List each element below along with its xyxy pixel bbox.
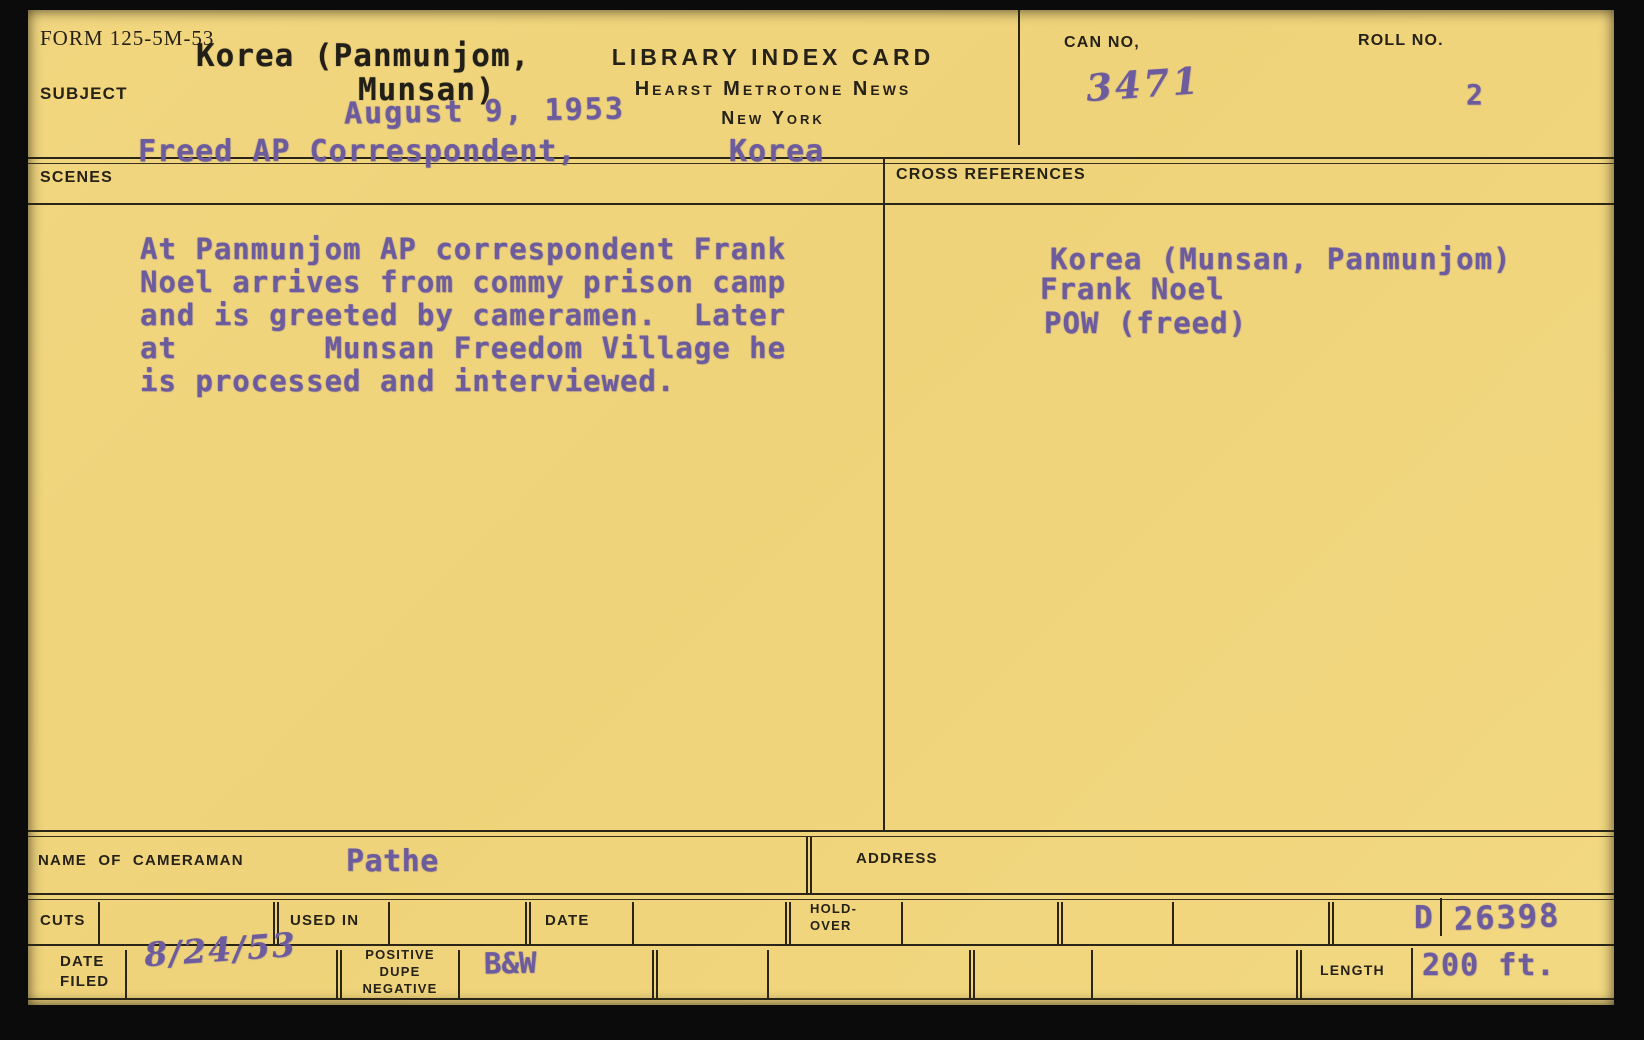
d-number-prefix: D [1414, 900, 1433, 936]
cuts-cell-divider [1172, 902, 1174, 944]
roll-no-value: 2 [1466, 78, 1483, 111]
cuts-cell-divider [785, 902, 791, 944]
holdover-label: HOLD- OVER [810, 900, 857, 934]
cross-reference-line: Korea (Munsan, Panmunjom) [1050, 242, 1512, 276]
cuts-cell-divider [525, 902, 531, 944]
used-in-label: USED IN [290, 912, 359, 929]
scan-background: FORM 125-5M-53 SUBJECT Korea (Panmunjom,… [0, 0, 1644, 1040]
scenes-line: Noel arrives from commy prison camp [140, 265, 786, 299]
cuts-cell-divider [388, 902, 390, 944]
cameraman-row-top-rule [28, 830, 1614, 837]
cuts-label: CUTS [40, 912, 86, 929]
filed-cell-divider [969, 950, 975, 998]
d-number-value: 26398 [1453, 896, 1561, 938]
filed-cell-divider [458, 950, 460, 998]
cuts-cell-divider [901, 902, 903, 944]
date-filed-value: 8/24/53 [143, 925, 298, 975]
cuts-row-top-rule [28, 893, 1614, 900]
library-index-card: FORM 125-5M-53 SUBJECT Korea (Panmunjom,… [28, 10, 1614, 1005]
filed-cell-divider [1091, 950, 1093, 998]
section-label-rule [28, 203, 1614, 205]
card-title: LIBRARY INDEX CARD [608, 44, 938, 71]
filed-cell-divider [336, 950, 342, 998]
form-number: FORM 125-5M-53 [40, 26, 214, 51]
address-label: ADDRESS [856, 850, 938, 867]
d-number-divider [1440, 898, 1442, 936]
card-org: Hearst Metrotone News [608, 78, 938, 101]
scenes-line: At Panmunjom AP correspondent Frank [140, 232, 786, 266]
stock-type-label: POSITIVE DUPE NEGATIVE [354, 946, 446, 997]
scenes-line: is processed and interviewed. [140, 364, 675, 398]
date-stamp: August 9, 1953 [344, 92, 625, 132]
subject-value-line1: Korea (Panmunjom, [196, 38, 530, 74]
filed-cell-divider [125, 950, 127, 998]
header-divider [1018, 10, 1020, 145]
subject-label: SUBJECT [40, 84, 128, 104]
can-no-label: CAN NO, [1064, 34, 1140, 52]
cameraman-label: NAME OF CAMERAMAN [38, 852, 244, 869]
card-title-block: LIBRARY INDEX CARD Hearst Metrotone News… [608, 44, 938, 129]
stock-value: B&W [484, 946, 537, 981]
length-value: 200 ft. [1422, 948, 1555, 983]
cuts-cell-divider [1057, 902, 1063, 944]
crossed-out-title: Freed AP Correspondent, Korea [138, 134, 824, 169]
cuts-cell-divider [98, 902, 100, 944]
cameraman-address-divider [806, 837, 812, 893]
roll-no-label: ROLL NO. [1358, 32, 1444, 50]
date-label: DATE [545, 912, 590, 929]
scenes-line: at Munsan Freedom Village he [140, 331, 786, 365]
cameraman-value: Pathe [346, 844, 439, 879]
length-divider [1411, 948, 1413, 998]
body-column-divider [883, 157, 885, 830]
can-no-value: 3471 [1085, 58, 1203, 110]
filed-cell-divider [767, 950, 769, 998]
date-filed-label: DATE FILED [60, 952, 109, 992]
cross-reference-line: Frank Noel [1040, 272, 1225, 306]
cross-reference-line: POW (freed) [1044, 306, 1247, 340]
card-bottom-rule [28, 998, 1614, 1000]
cuts-cell-divider [1328, 902, 1334, 944]
filed-cell-divider [1296, 950, 1302, 998]
scenes-line: and is greeted by cameramen. Later [140, 298, 786, 332]
scenes-label: SCENES [40, 169, 113, 187]
length-label: LENGTH [1320, 962, 1385, 978]
cuts-cell-divider [632, 902, 634, 944]
cross-references-label: CROSS REFERENCES [896, 166, 1086, 184]
card-city: New York [608, 108, 938, 129]
filed-cell-divider [652, 950, 658, 998]
